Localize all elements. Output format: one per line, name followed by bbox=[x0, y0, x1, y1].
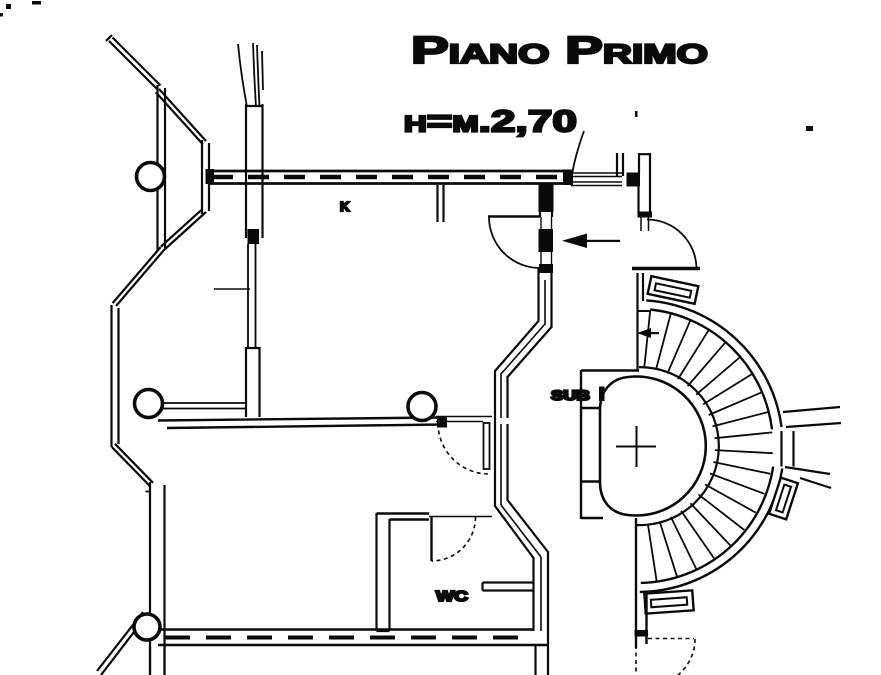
svg-text:K: K bbox=[340, 199, 350, 214]
svg-text:h=m.2,70: h=m.2,70 bbox=[404, 104, 577, 139]
svg-text:SUB: SUB bbox=[551, 388, 590, 403]
svg-text:WC: WC bbox=[436, 588, 468, 605]
svg-text:Piano Primo: Piano Primo bbox=[411, 30, 708, 72]
